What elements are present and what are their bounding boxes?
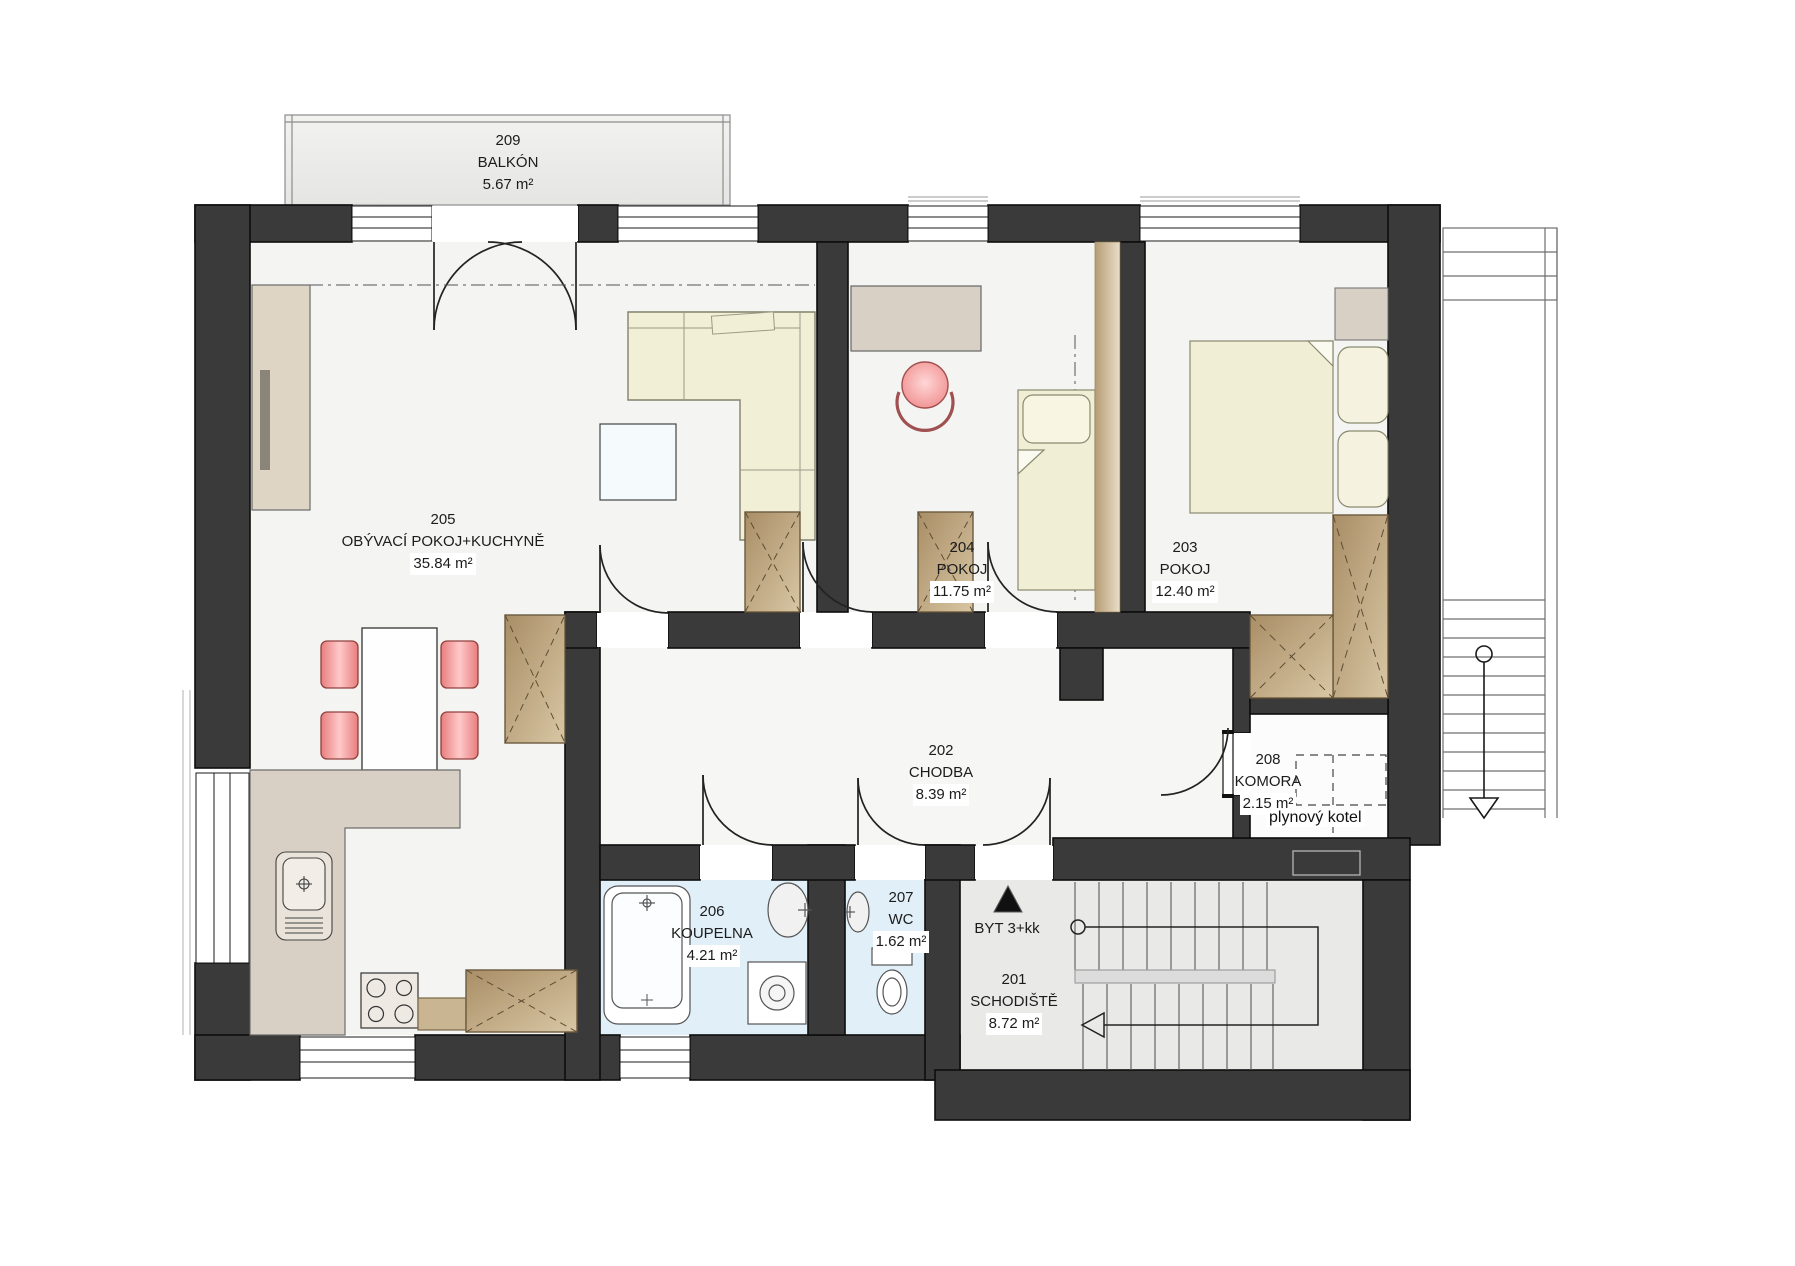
room-name: KOMORA: [1193, 771, 1343, 793]
room-label-204: 204 POKOJ 11.75 m²: [887, 537, 1037, 603]
room-number: 206: [637, 901, 787, 923]
coffee-table: [600, 424, 676, 500]
dining-chair: [441, 712, 478, 759]
kitchen-cabinet: [418, 998, 466, 1030]
room-number: 205: [293, 509, 593, 531]
room-label-208: 208 KOMORA 2.15 m²: [1193, 749, 1343, 815]
kitchen-sink: [276, 852, 332, 940]
room-label-201: 201 SCHODIŠTĚ 8.72 m²: [939, 969, 1089, 1035]
room-name: POKOJ: [887, 559, 1037, 581]
boiler-label: plynový kotel: [1266, 809, 1365, 827]
washing-machine: [748, 962, 806, 1024]
kitchen-tall-cabinet: [466, 970, 577, 1032]
window-bottom-bathroom: [620, 1037, 690, 1078]
room-name: POKOJ: [1110, 559, 1260, 581]
room-label-206: 206 KOUPELNA 4.21 m²: [637, 901, 787, 967]
room-number: 208: [1193, 749, 1343, 771]
room-area: 8.72 m²: [986, 1013, 1043, 1035]
room-area: 4.21 m²: [684, 945, 741, 967]
room-area: 8.39 m²: [913, 784, 970, 806]
room-area: 35.84 m²: [410, 553, 475, 575]
stair-landing: [1075, 970, 1275, 983]
room-name: SCHODIŠTĚ: [939, 991, 1089, 1013]
exterior-stair-direction-arrow: [1470, 646, 1498, 818]
room-label-203: 203 POKOJ 12.40 m²: [1110, 537, 1260, 603]
stove: [361, 973, 418, 1028]
room-label-209: 209 BALKÓN 5.67 m²: [388, 130, 628, 196]
exterior-landing: [1443, 228, 1557, 300]
room-name: KOUPELNA: [637, 923, 787, 945]
window-top-2: [618, 206, 758, 241]
window-bottom-kitchen: [300, 1037, 415, 1078]
hall-closet: [505, 615, 565, 743]
balcony-door-opening: [432, 206, 578, 241]
dining-table: [362, 628, 437, 770]
room-label-205: 205 OBÝVACÍ POKOJ+KUCHYNĚ 35.84 m²: [293, 509, 593, 575]
floor-plan-drawing: [0, 0, 1795, 1266]
exterior-staircase: [1443, 228, 1557, 818]
room-number: 201: [939, 969, 1089, 991]
room-number: 203: [1110, 537, 1260, 559]
room-area: 11.75 m²: [930, 581, 994, 603]
exterior-stair-treads: [1443, 600, 1545, 809]
bedside-shelf: [1335, 288, 1388, 340]
window-top-4: [1140, 197, 1300, 241]
room-number: 204: [887, 537, 1037, 559]
room-area: 1.62 m²: [873, 931, 930, 953]
room-name: BALKÓN: [388, 152, 628, 174]
room-number: 209: [388, 130, 628, 152]
room-name: OBÝVACÍ POKOJ+KUCHYNĚ: [293, 531, 593, 553]
dining-chair: [321, 641, 358, 688]
wall-unit: [252, 285, 310, 510]
wardrobe: [745, 512, 800, 612]
dining-chair: [441, 641, 478, 688]
entrance-label: BYT 3+kk: [932, 918, 1082, 940]
room-name: CHODBA: [866, 762, 1016, 784]
room-area: 5.67 m²: [480, 174, 537, 196]
floor-plan: 209 BALKÓN 5.67 m² 205 OBÝVACÍ POKOJ+KUC…: [0, 0, 1795, 1266]
room-label-202: 202 CHODBA 8.39 m²: [866, 740, 1016, 806]
pillow: [1338, 347, 1388, 423]
room-number: 207: [826, 887, 976, 909]
window-top-1: [352, 206, 432, 241]
room-area: 12.40 m²: [1152, 581, 1217, 603]
desk: [851, 286, 981, 351]
dining-chair: [321, 712, 358, 759]
pillow: [1338, 431, 1388, 507]
window-top-3: [908, 197, 988, 241]
room-number: 202: [866, 740, 1016, 762]
